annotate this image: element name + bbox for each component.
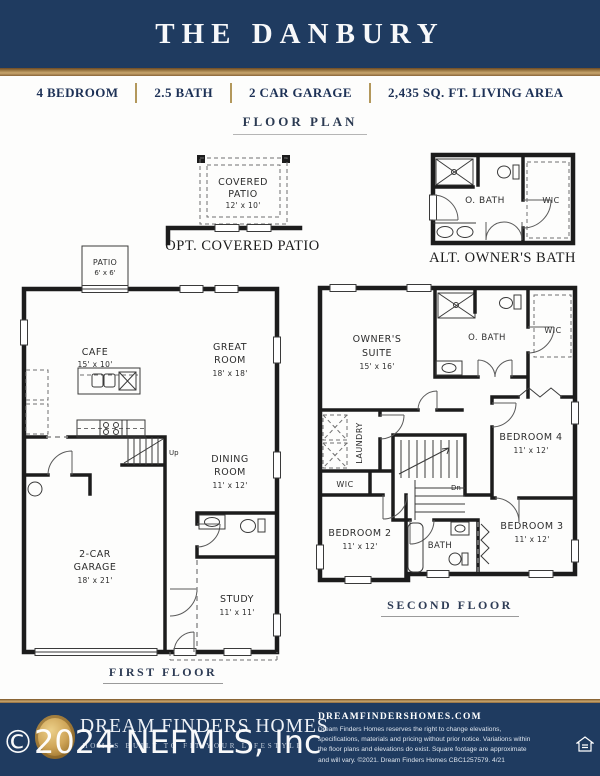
- room-dims: 11' x 11': [219, 608, 254, 617]
- floor-plan-heading: FLOOR PLAN: [0, 113, 600, 135]
- spec-separator: [135, 83, 137, 103]
- patio-post: [197, 155, 205, 163]
- room-label-cafe: CAFE: [82, 347, 109, 358]
- pantry-shelves: [26, 370, 48, 400]
- door-arc: [170, 589, 197, 616]
- door-arc: [495, 498, 519, 522]
- window: [317, 545, 324, 569]
- spec-baths: 2.5 BATH: [154, 85, 213, 101]
- bifold-door: [518, 388, 562, 397]
- room-label: PATIO: [228, 189, 257, 200]
- window: [572, 402, 579, 424]
- window: [427, 571, 449, 578]
- room-label-dining: DINING: [211, 454, 249, 465]
- svg-text:SUITE: SUITE: [362, 348, 392, 359]
- room-label-wic-small: WIC: [336, 480, 353, 489]
- second-floor-plan: Dn OWNER'S SUITE 15' x 16' O. BATH WIC L…: [315, 282, 585, 592]
- door-arc: [197, 524, 220, 547]
- room-label-obath: O. BATH: [468, 333, 506, 343]
- toilet-tank: [513, 165, 519, 179]
- opt-covered-patio-plan: COVERED PATIO 12' x 10': [155, 148, 330, 246]
- window: [215, 225, 239, 232]
- disclaimer-text: Dream Finders Homes reserves the right t…: [318, 725, 536, 766]
- window: [345, 577, 371, 584]
- equal-housing-icon: [576, 736, 594, 753]
- room-dims: 18' x 18': [212, 369, 247, 378]
- door-arc: [48, 451, 72, 475]
- room-label-garage: 2-CAR: [79, 549, 111, 560]
- bifold-door: [481, 524, 489, 564]
- svg-text:ROOM: ROOM: [214, 355, 246, 366]
- window: [407, 285, 431, 292]
- stairs-label-up: Up: [169, 449, 179, 457]
- svg-text:ROOM: ROOM: [214, 467, 246, 478]
- room-dims: 11' x 12': [514, 535, 549, 544]
- patio-post: [282, 155, 290, 163]
- door-arc: [492, 403, 516, 427]
- room-label-bedroom3: BEDROOM 3: [500, 521, 563, 532]
- room-dims: 12' x 10': [225, 201, 260, 210]
- room-label-wic: WIC: [542, 196, 559, 205]
- water-heater: [28, 482, 42, 496]
- room-label-owners-suite: OWNER'S: [353, 334, 402, 345]
- alt-owners-bath-plan: O. BATH WIC: [428, 150, 578, 250]
- stairs-label-dn: Dn: [451, 484, 461, 492]
- room-label-great-room: GREAT: [213, 342, 247, 353]
- spec-garage: 2 CAR GARAGE: [249, 85, 352, 101]
- spec-area: 2,435 SQ. FT. LIVING AREA: [388, 85, 564, 101]
- sink: [205, 518, 220, 527]
- second-floor-caption: SECOND FLOOR: [315, 596, 585, 617]
- mls-watermark: ©2024 NEFMLS, Inc: [2, 723, 322, 761]
- spec-bedrooms: 4 BEDROOM: [36, 85, 118, 101]
- window: [572, 540, 579, 562]
- toilet: [449, 553, 461, 565]
- first-floor-plan: PATIO 6' x 6': [18, 242, 308, 662]
- front-door-opening: [174, 649, 196, 656]
- room-label-laundry: LAUNDRY: [355, 422, 364, 464]
- room-label: COVERED: [218, 177, 268, 188]
- toilet: [241, 520, 256, 533]
- floor-plan-sheet: THE DANBURY 4 BEDROOM 2.5 BATH 2 CAR GAR…: [0, 0, 600, 776]
- room-label-bedroom4: BEDROOM 4: [499, 432, 562, 443]
- door-opening: [430, 195, 437, 220]
- room-label-bedroom2: BEDROOM 2: [328, 528, 391, 539]
- sink: [457, 227, 473, 238]
- header-bar: THE DANBURY: [0, 0, 600, 68]
- door-arc: [383, 495, 407, 519]
- room-dims: 11' x 12': [342, 542, 377, 551]
- room-dims: 11' x 12': [212, 481, 247, 490]
- double-door-arc: [486, 222, 522, 240]
- range: [100, 420, 122, 437]
- double-door-arc: [478, 360, 512, 377]
- room-label-obath: O. BATH: [465, 196, 505, 206]
- sink: [104, 374, 115, 387]
- room-label-wic: WIC: [544, 326, 561, 335]
- window: [180, 286, 203, 293]
- sink: [437, 227, 453, 238]
- vanity: [451, 522, 469, 535]
- toilet: [498, 166, 511, 178]
- room-dims: 15' x 16': [359, 362, 394, 371]
- window: [274, 337, 281, 363]
- toilet: [500, 298, 513, 309]
- gold-divider: [0, 68, 600, 76]
- window: [247, 225, 271, 232]
- window: [215, 286, 238, 293]
- sink: [455, 525, 465, 532]
- room-label-bath: BATH: [428, 541, 453, 551]
- toilet-tank: [462, 553, 468, 565]
- window: [529, 571, 553, 578]
- sink: [442, 364, 456, 373]
- toilet-tank: [514, 295, 521, 309]
- room-label-patio: PATIO: [93, 258, 117, 267]
- room-label-study: STUDY: [220, 594, 254, 605]
- specs-bar: 4 BEDROOM 2.5 BATH 2 CAR GARAGE 2,435 SQ…: [0, 76, 600, 110]
- spec-separator: [230, 83, 232, 103]
- window: [21, 320, 28, 345]
- footer-legal-block: DREAMFINDERSHOMES.COM Dream Finders Home…: [318, 712, 542, 766]
- window: [330, 285, 356, 292]
- website-text: DREAMFINDERSHOMES.COM: [318, 712, 542, 722]
- pantry-shelves: [26, 404, 48, 434]
- page-title: THE DANBURY: [155, 18, 444, 51]
- svg-text:GARAGE: GARAGE: [74, 562, 117, 573]
- window: [224, 649, 251, 656]
- stairs-down: [401, 440, 457, 478]
- alt-bath-caption: ALT. OWNER'S BATH: [420, 250, 585, 267]
- room-dims: 11' x 12': [513, 446, 548, 455]
- sink: [92, 374, 103, 387]
- patio-outline: [82, 246, 128, 289]
- window: [274, 452, 281, 478]
- first-floor-caption: FIRST FLOOR: [18, 663, 308, 684]
- room-dims: 15' x 10': [77, 360, 112, 369]
- window: [274, 614, 281, 636]
- toilet-tank: [258, 519, 265, 532]
- door-arc: [418, 391, 437, 410]
- spec-separator: [369, 83, 371, 103]
- room-dims: 18' x 21': [77, 576, 112, 585]
- room-dims: 6' x 6': [94, 269, 115, 277]
